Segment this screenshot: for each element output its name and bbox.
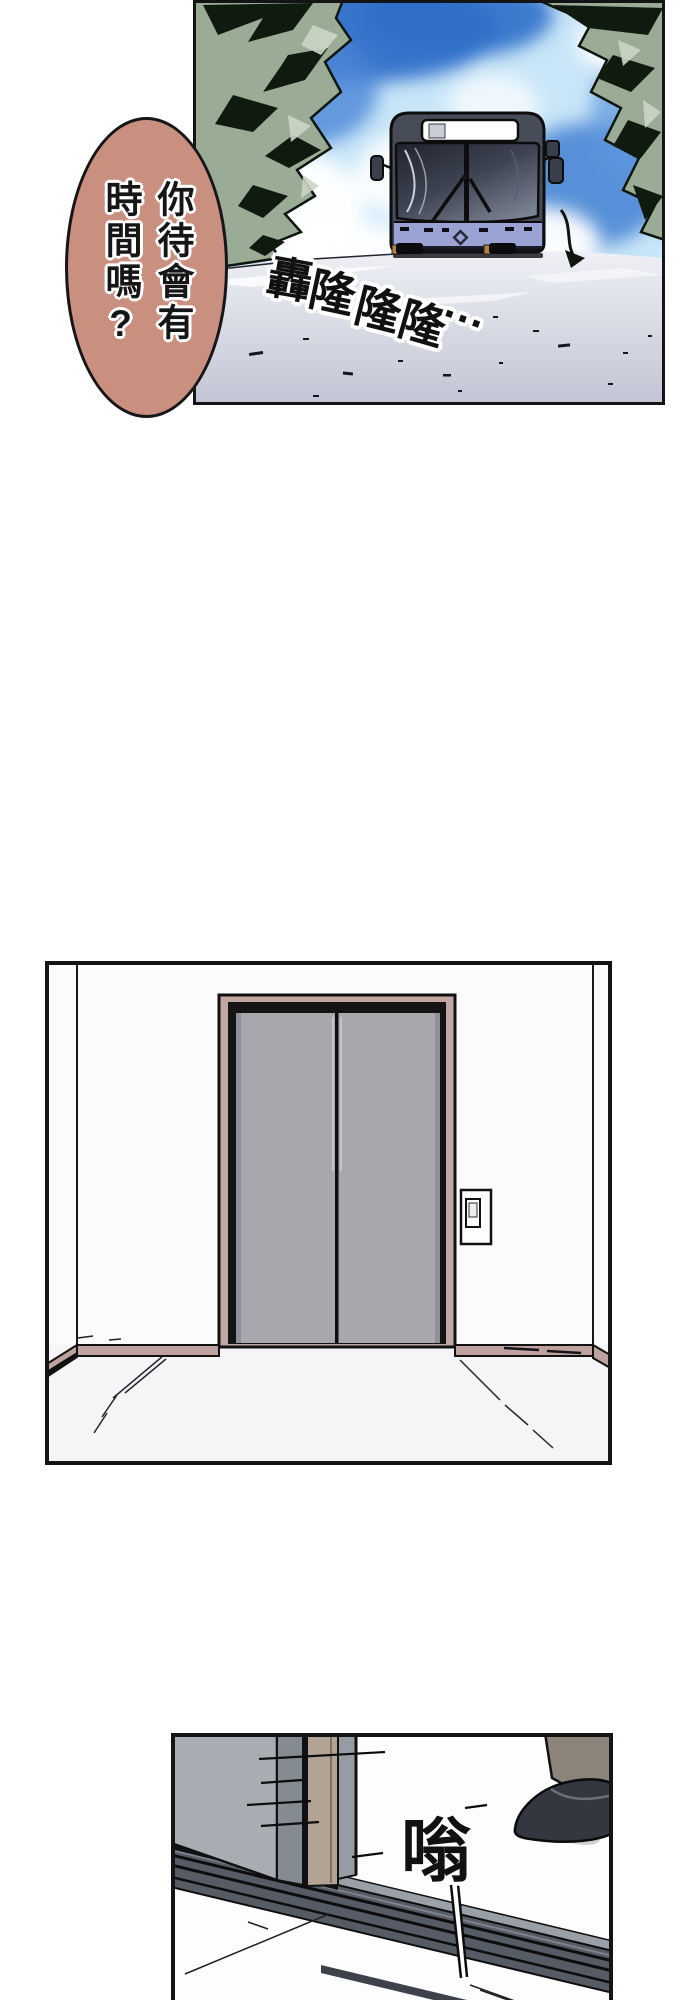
- sfx-buzz: 嗡: [401, 1795, 471, 1896]
- speech-text-column-right: 你待會有: [152, 180, 193, 360]
- floor: [45, 1345, 612, 1465]
- door-center-gap: [335, 1013, 339, 1343]
- comic-page: 轟 隆 隆 隆 ... 你待會有 時間嗎?: [0, 0, 690, 2000]
- bus-wheel-left: [396, 243, 423, 254]
- panel-bus-road: 轟 隆 隆 隆 ...: [193, 0, 665, 405]
- speech-bubble: 你待會有 時間嗎?: [65, 117, 228, 418]
- speech-text-column-left: 時間嗎?: [100, 180, 141, 360]
- bus: [371, 113, 563, 258]
- panel-elevator-hall: [45, 961, 612, 1465]
- panel-door-closeup: 嗡: [171, 1733, 613, 2000]
- door-closeup-scene: [171, 1733, 613, 2000]
- elevator: [219, 995, 455, 1347]
- call-button-panel: [461, 1190, 491, 1244]
- elevator-hall-scene: [45, 961, 612, 1465]
- bus-wheel-right: [489, 243, 516, 254]
